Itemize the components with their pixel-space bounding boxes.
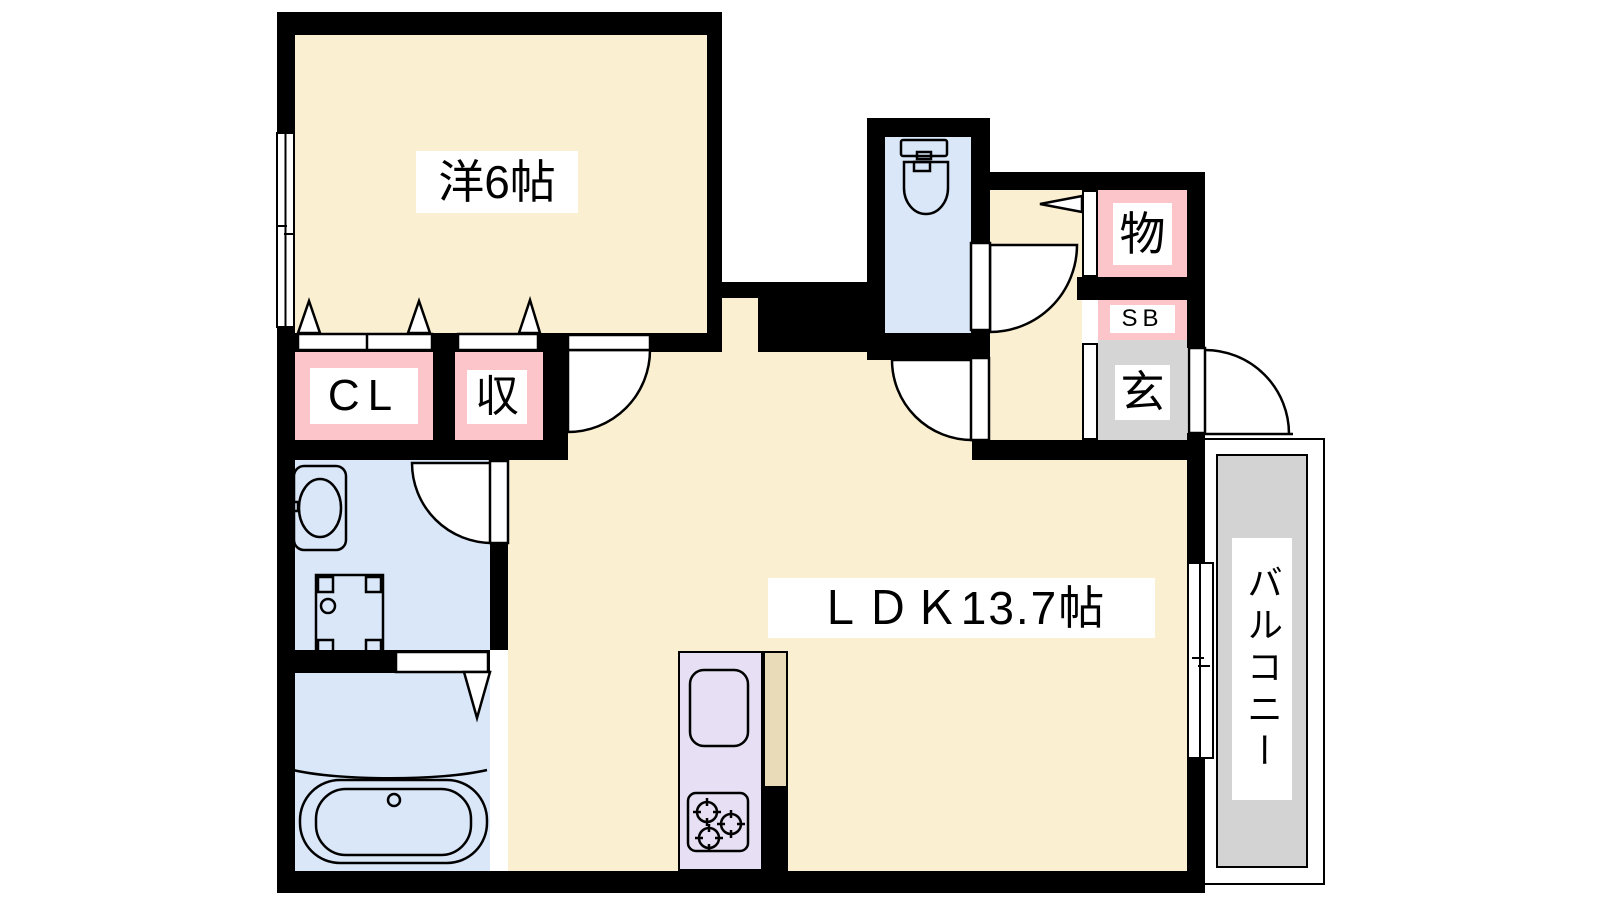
folding-door-triangle-icon — [519, 300, 540, 333]
entrance-label: 玄 — [1115, 365, 1170, 420]
folding-door-triangle-icon — [408, 301, 430, 333]
sliding-window-icon — [277, 133, 294, 327]
balcony-label: バルコニー — [1232, 538, 1292, 800]
closet-doors-icon — [298, 300, 540, 350]
entrance-door-icon — [1189, 348, 1293, 434]
bathroom-door-icon — [396, 652, 490, 718]
sliding-window-icon — [1188, 563, 1213, 758]
shoe-box-label: SB — [1110, 305, 1175, 333]
swing-door-icon — [892, 358, 989, 440]
closet-label: CL — [310, 368, 418, 424]
floor-plan: 洋6帖 ＬＤＫ13.7帖 CL 収 物 SB 玄 バルコニー — [0, 0, 1600, 900]
washbasin-icon — [286, 466, 346, 550]
toilet-icon — [901, 140, 948, 214]
gas-stove-icon — [688, 793, 748, 852]
plan-symbols — [0, 0, 1600, 900]
folding-door-triangle-icon — [464, 672, 490, 718]
swing-door-icon — [412, 461, 508, 543]
folding-door-triangle-icon — [1040, 196, 1082, 212]
bedroom-label: 洋6帖 — [416, 151, 578, 213]
folding-door-triangle-icon — [298, 301, 320, 333]
kitchen-sink-icon — [690, 670, 748, 746]
ldk-label: ＬＤＫ13.7帖 — [768, 578, 1155, 638]
hall-storage-label: 物 — [1113, 203, 1172, 265]
swing-door-icon — [568, 335, 650, 432]
swing-door-icon — [971, 243, 1077, 332]
bedroom-storage-label: 収 — [467, 370, 527, 424]
washing-machine-pan-icon — [316, 575, 383, 657]
bathtub-icon — [293, 770, 487, 863]
